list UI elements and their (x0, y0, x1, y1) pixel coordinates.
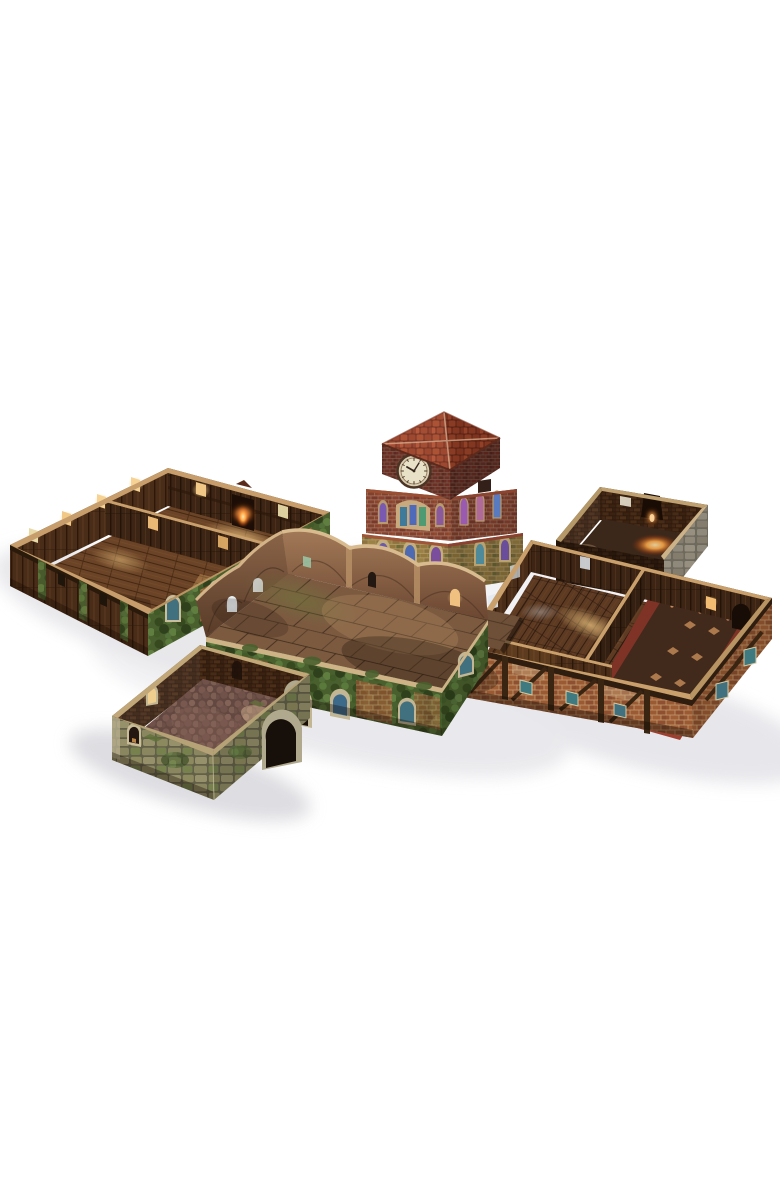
pilaster (414, 562, 420, 605)
product-photo (0, 0, 780, 1196)
dark-window (368, 572, 376, 588)
lit-window (303, 556, 311, 568)
pilaster (346, 545, 352, 588)
doorway-opening (266, 719, 296, 768)
chimney-block (478, 479, 491, 493)
stained-window (476, 494, 484, 521)
fireplace-fire (236, 505, 250, 528)
floor-light-pool (520, 603, 560, 621)
arched-window (460, 655, 472, 675)
wall-niche (232, 661, 242, 680)
stained-window (437, 506, 444, 525)
ivy-patch (228, 745, 252, 759)
stained-window (380, 503, 387, 522)
terrain-set-illustration (0, 0, 780, 1196)
stained-lancet (419, 507, 426, 526)
stained-lancet (400, 507, 407, 526)
leaded-window (744, 647, 756, 666)
lit-window (580, 556, 590, 570)
leaded-window (716, 681, 728, 700)
stained-window (493, 491, 501, 518)
stained-lancet (410, 505, 417, 525)
stained-window (460, 498, 468, 525)
furnace-fire-core (650, 514, 655, 522)
ivy-patch (161, 752, 189, 768)
lit-window (450, 589, 460, 607)
clock-center (413, 470, 416, 473)
stained-window (476, 544, 484, 564)
stained-window (501, 540, 509, 560)
